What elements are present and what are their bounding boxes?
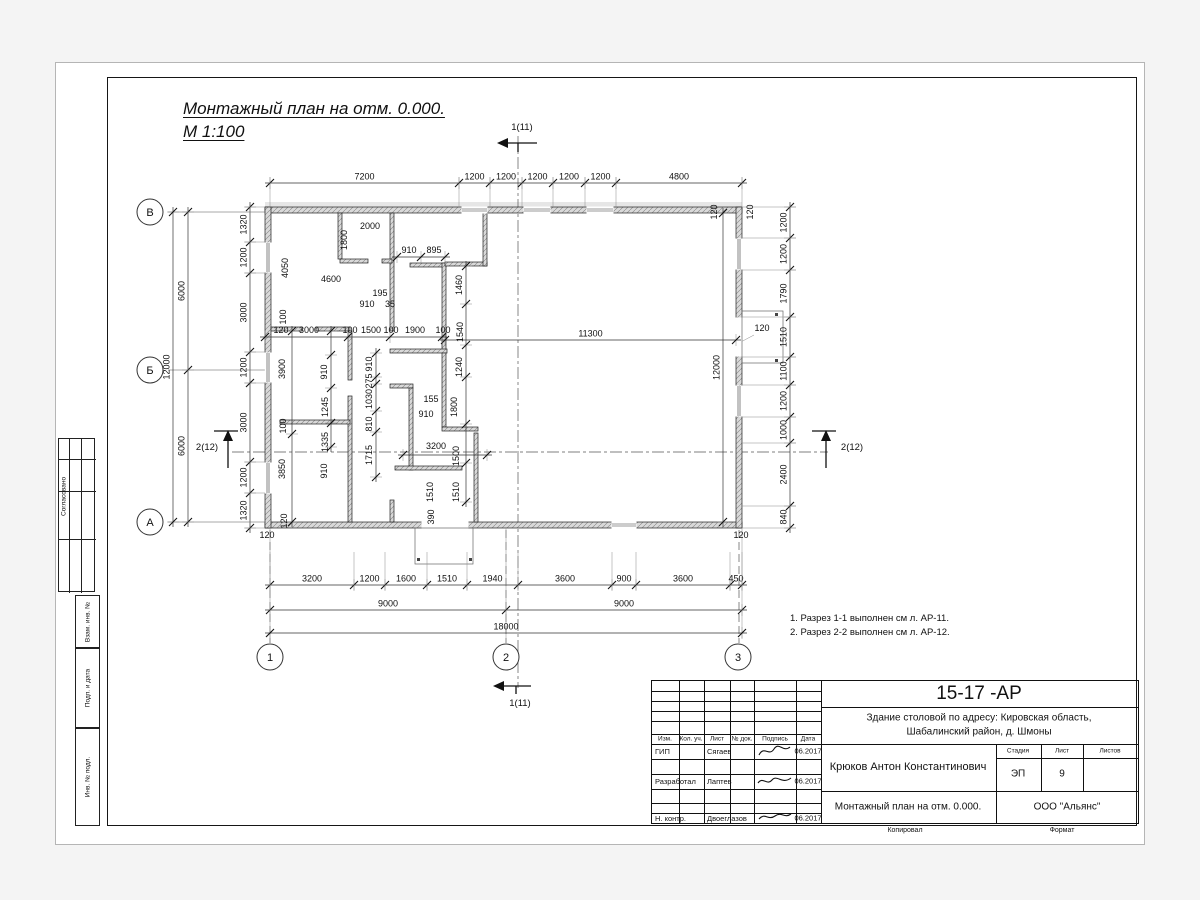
sheet-name: Монтажный план на отм. 0.000. <box>835 802 981 813</box>
stamp-strip-podp: Подп. и дата <box>75 648 100 728</box>
drawing-title: Монтажный план на отм. 0.000. М 1:100 <box>183 97 445 143</box>
title-block: Изм. Кол. уч. Лист № док. Подпись Дата Г… <box>651 680 1139 824</box>
format-label: Формат <box>1050 827 1075 834</box>
col-list: Лист <box>710 736 724 743</box>
row-name: Двоеглазов <box>707 814 747 823</box>
row-role: Разработал <box>655 777 696 786</box>
col-kol: Кол. уч. <box>679 736 702 743</box>
signature <box>756 744 794 758</box>
sheets-label: Листов <box>1099 748 1120 755</box>
signature <box>756 774 794 788</box>
object-line1: Здание столовой по адресу: Кировская обл… <box>866 713 1091 724</box>
notes: 1. Разрез 1-1 выполнен см л. АР-11. 2. Р… <box>790 612 950 640</box>
row-date: 06.2017 <box>794 777 821 786</box>
row-date: 06.2017 <box>794 747 821 756</box>
copied-label: Копировал <box>887 827 922 834</box>
note-line: 2. Разрез 2-2 выполнен см л. АР-12. <box>790 626 950 640</box>
col-izm: Изм. <box>658 736 672 743</box>
stamp-strip-vzam: Взам. инв. № <box>75 595 100 648</box>
stage-label: Стадия <box>1007 748 1029 755</box>
row-role: ГИП <box>655 747 670 756</box>
drawing-title-scale: М 1:100 <box>183 120 445 143</box>
col-date: Дата <box>801 736 815 743</box>
stage-value: ЭП <box>1011 769 1025 780</box>
company-name: ООО "Альянс" <box>1034 802 1101 813</box>
page-background: Согласовано Взам. инв. № Подп. и дата Ин… <box>0 0 1200 900</box>
object-line2: Шабалинский район, д. Шмоны <box>906 727 1051 738</box>
row-name: Лаптев <box>707 777 732 786</box>
col-sign: Подпись <box>762 736 788 743</box>
strip-label: Подп. и дата <box>84 669 91 707</box>
note-line: 1. Разрез 1-1 выполнен см л. АР-11. <box>790 612 950 626</box>
stamp-strip-inv: Инв. № подл. <box>75 728 100 826</box>
approval-label: Согласовано <box>61 477 68 516</box>
chief-name: Крюков Антон Константинович <box>830 761 987 773</box>
row-name: Сягаев <box>707 747 731 756</box>
strip-label: Инв. № подл. <box>84 757 91 798</box>
strip-label: Взам. инв. № <box>84 601 91 641</box>
row-date: 06.2017 <box>794 814 821 823</box>
col-doc: № док. <box>732 736 753 743</box>
sheet-number: 9 <box>1059 769 1065 780</box>
approval-strip: Согласовано <box>58 438 95 592</box>
doc-number: 15-17 -АР <box>936 683 1022 705</box>
row-role: Н. контр. <box>655 814 686 823</box>
sheet-label: Лист <box>1055 748 1069 755</box>
drawing-title-line1: Монтажный план на отм. 0.000. <box>183 97 445 120</box>
signature <box>756 809 794 823</box>
